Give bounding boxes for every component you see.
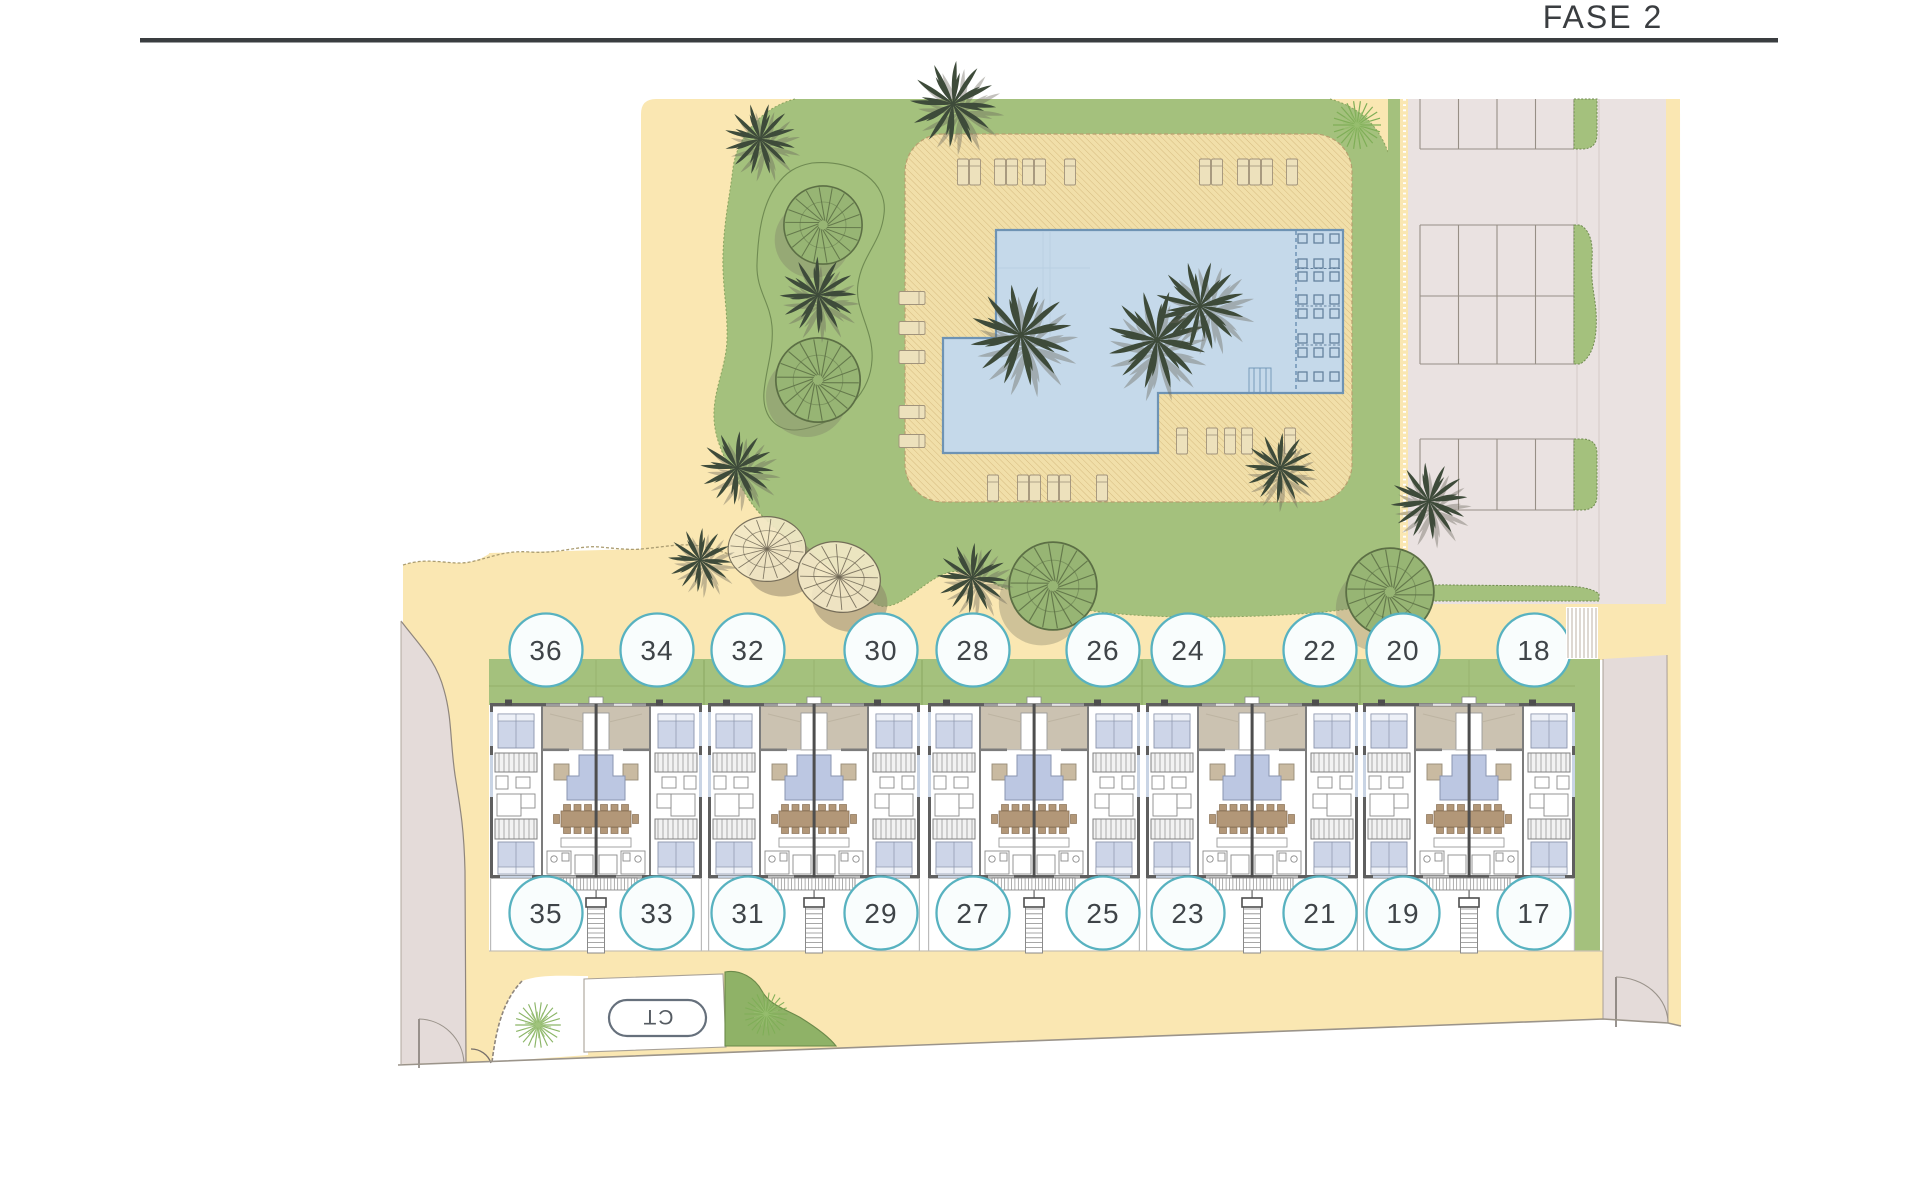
- svg-text:20: 20: [1386, 635, 1419, 666]
- svg-text:26: 26: [1086, 635, 1119, 666]
- svg-text:27: 27: [956, 898, 989, 929]
- svg-text:17: 17: [1517, 898, 1550, 929]
- svg-text:18: 18: [1517, 635, 1550, 666]
- svg-text:29: 29: [864, 898, 897, 929]
- svg-text:23: 23: [1171, 898, 1204, 929]
- svg-text:32: 32: [731, 635, 764, 666]
- svg-text:21: 21: [1303, 898, 1336, 929]
- svg-text:31: 31: [731, 898, 764, 929]
- svg-text:28: 28: [956, 635, 989, 666]
- svg-text:CT: CT: [642, 1005, 674, 1028]
- svg-text:36: 36: [529, 635, 562, 666]
- svg-text:25: 25: [1086, 898, 1119, 929]
- svg-text:34: 34: [640, 635, 673, 666]
- svg-text:22: 22: [1303, 635, 1336, 666]
- svg-text:FASE 2: FASE 2: [1543, 0, 1664, 35]
- svg-text:19: 19: [1386, 898, 1419, 929]
- svg-text:30: 30: [864, 635, 897, 666]
- svg-text:24: 24: [1171, 635, 1204, 666]
- svg-text:35: 35: [529, 898, 562, 929]
- svg-text:33: 33: [640, 898, 673, 929]
